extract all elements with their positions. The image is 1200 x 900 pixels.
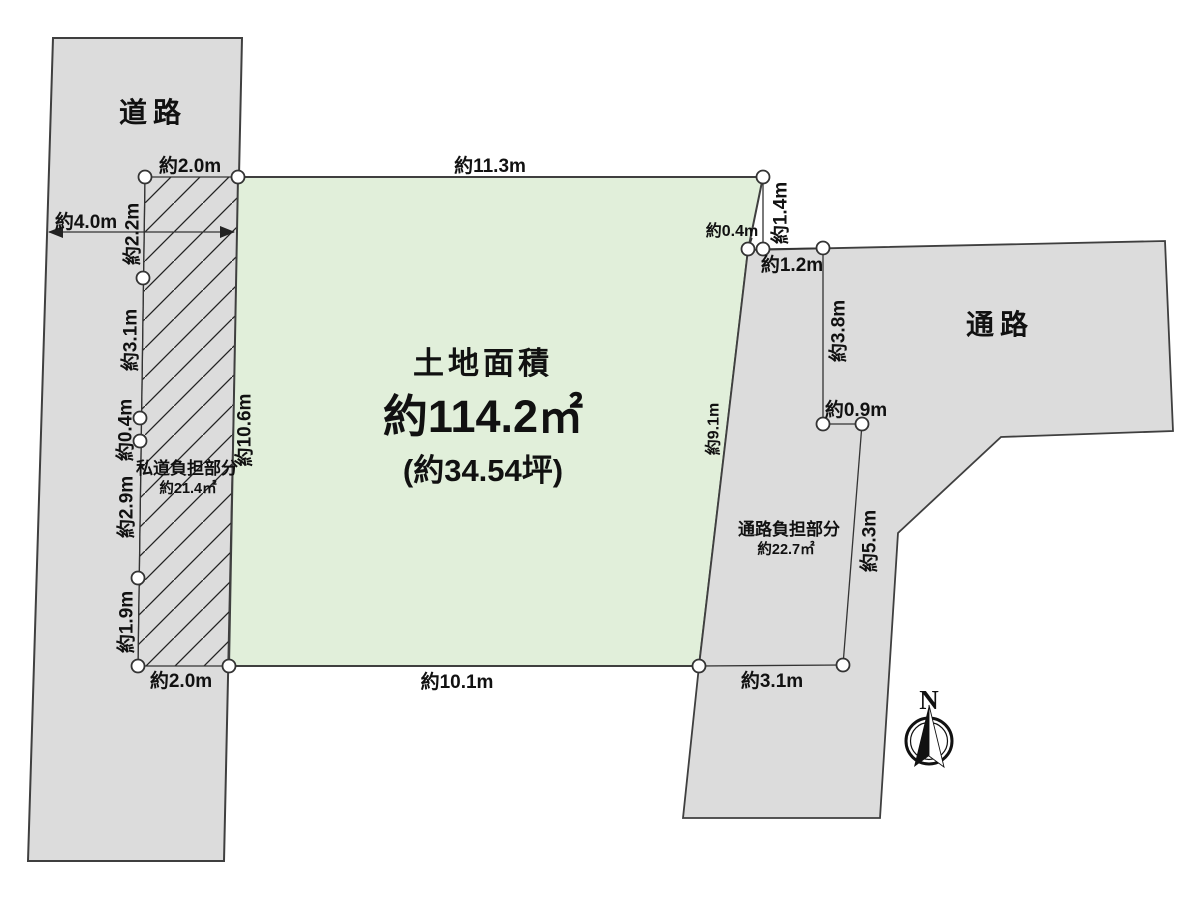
road-label: 道路 bbox=[119, 96, 187, 128]
vertex-marker bbox=[132, 660, 145, 673]
vertex-marker bbox=[817, 242, 830, 255]
passage-burden-area-value: 約22.7㎡ bbox=[757, 540, 815, 558]
dim-label-left-seg-2: 約3.1m bbox=[119, 309, 142, 371]
dim-label-burden-right-height: 約5.3m bbox=[858, 510, 881, 572]
dim-label-burden-bottom-width: 約3.1m bbox=[741, 669, 803, 692]
vertex-marker bbox=[139, 171, 152, 184]
plot-title: 土地面積 bbox=[413, 346, 553, 381]
private-road-burden-area bbox=[138, 177, 238, 666]
dim-label-plot-right-height: 約9.1m bbox=[704, 403, 723, 455]
vertex-marker bbox=[837, 659, 850, 672]
plot-diagram-canvas: 道路 通路 土地面積 約114.2㎡ (約34.54坪) 私道負担部分 約21.… bbox=[0, 0, 1200, 900]
dim-label-road-width: 約4.0m bbox=[55, 210, 117, 233]
vertex-marker bbox=[132, 572, 145, 585]
vertex-marker bbox=[137, 272, 150, 285]
vertex-marker bbox=[232, 171, 245, 184]
dim-label-left-seg-1: 約2.2m bbox=[121, 203, 144, 265]
passage-label: 通路 bbox=[966, 309, 1034, 340]
dim-label-top-width: 約11.3m bbox=[454, 154, 526, 177]
vertex-marker bbox=[757, 243, 770, 256]
plot-area-value: 約114.2㎡ bbox=[383, 391, 583, 442]
dim-label-bottom-left-width: 約2.0m bbox=[150, 669, 212, 692]
dim-label-bottom-width: 約10.1m bbox=[421, 670, 494, 693]
dim-label-burden-left-height: 約3.8m bbox=[827, 300, 850, 362]
vertex-marker bbox=[223, 660, 236, 673]
private-road-burden-label: 私道負担部分 bbox=[136, 458, 238, 478]
dim-label-top-left-width: 約2.0m bbox=[159, 154, 221, 177]
plot-tsubo-value: (約34.54坪) bbox=[403, 453, 563, 488]
private-road-burden-area-value: 約21.4㎡ bbox=[159, 479, 217, 497]
dim-label-left-seg-5: 約1.9m bbox=[115, 591, 138, 653]
vertex-marker bbox=[757, 171, 770, 184]
dim-label-right-top-offset: 約0.4m bbox=[706, 221, 758, 240]
vertex-marker bbox=[742, 243, 755, 256]
dim-label-right-top-height: 約1.4m bbox=[769, 182, 792, 244]
dim-label-left-seg-3: 約0.4m bbox=[114, 399, 137, 461]
vertex-marker bbox=[693, 660, 706, 673]
north-compass: N bbox=[906, 685, 952, 767]
dim-label-left-seg-4: 約2.9m bbox=[115, 476, 138, 538]
land-plot-diagram: 道路 通路 土地面積 約114.2㎡ (約34.54坪) 私道負担部分 約21.… bbox=[0, 0, 1200, 900]
dim-label-burden-mid-width: 約0.9m bbox=[825, 398, 887, 421]
dim-label-burden-top-width: 約1.2m bbox=[761, 253, 823, 276]
passage-burden-label: 通路負担部分 bbox=[738, 519, 840, 539]
dim-label-hatch-right-height: 約10.6m bbox=[233, 394, 256, 467]
